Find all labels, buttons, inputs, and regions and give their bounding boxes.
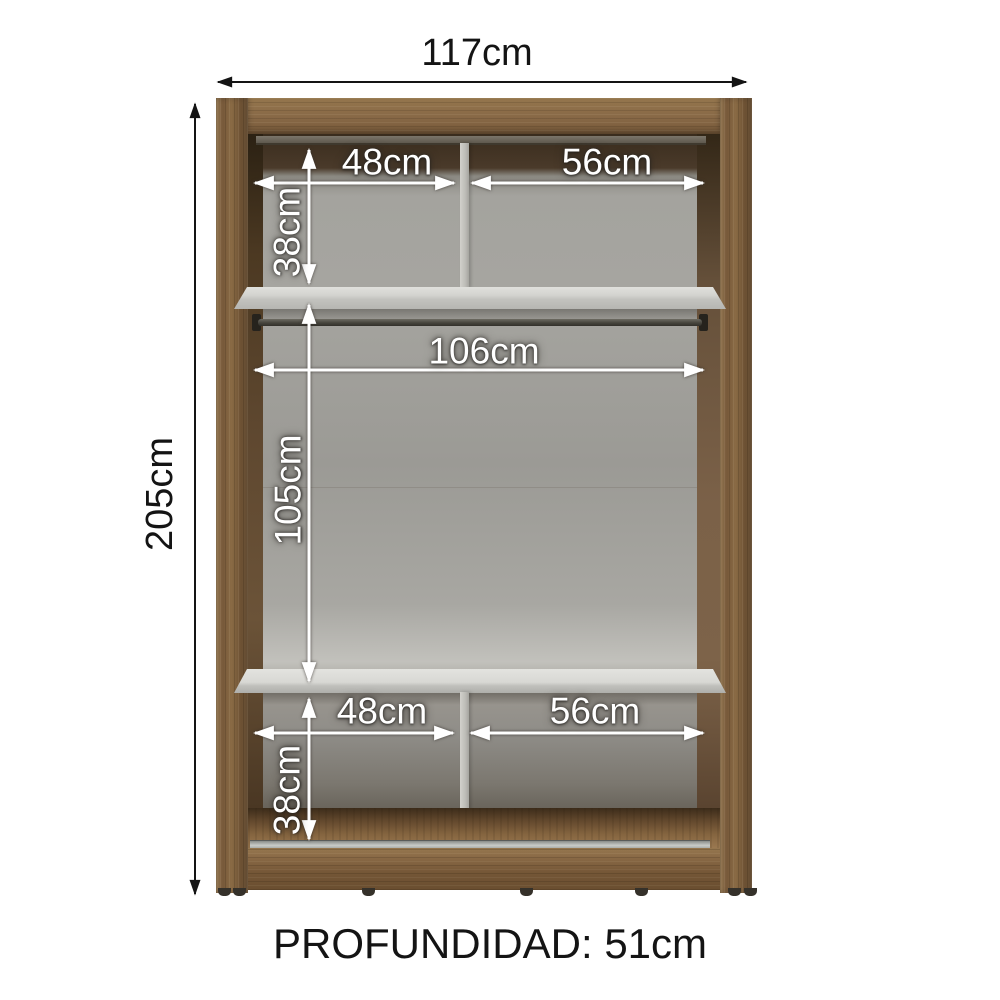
diagram-canvas: 117cm 205cm PROFUNDIDAD: 51cm 48cm 56cm … (0, 0, 1000, 1000)
interior-dimension-arrows (255, 150, 703, 839)
top-height-label: 38cm (269, 187, 306, 277)
bottom-height-label: 38cm (269, 745, 306, 835)
bottom-left-width-label: 48cm (337, 693, 427, 730)
rod-width-label: 106cm (428, 333, 539, 370)
width-dimension-label: 117cm (421, 34, 532, 72)
top-right-width-label: 56cm (562, 144, 652, 181)
middle-height-label: 105cm (270, 434, 307, 545)
depth-dimension-label: PROFUNDIDAD: 51cm (273, 923, 707, 965)
height-dimension-label: 205cm (141, 437, 179, 551)
top-left-width-label: 48cm (342, 144, 432, 181)
bottom-right-width-label: 56cm (550, 693, 640, 730)
